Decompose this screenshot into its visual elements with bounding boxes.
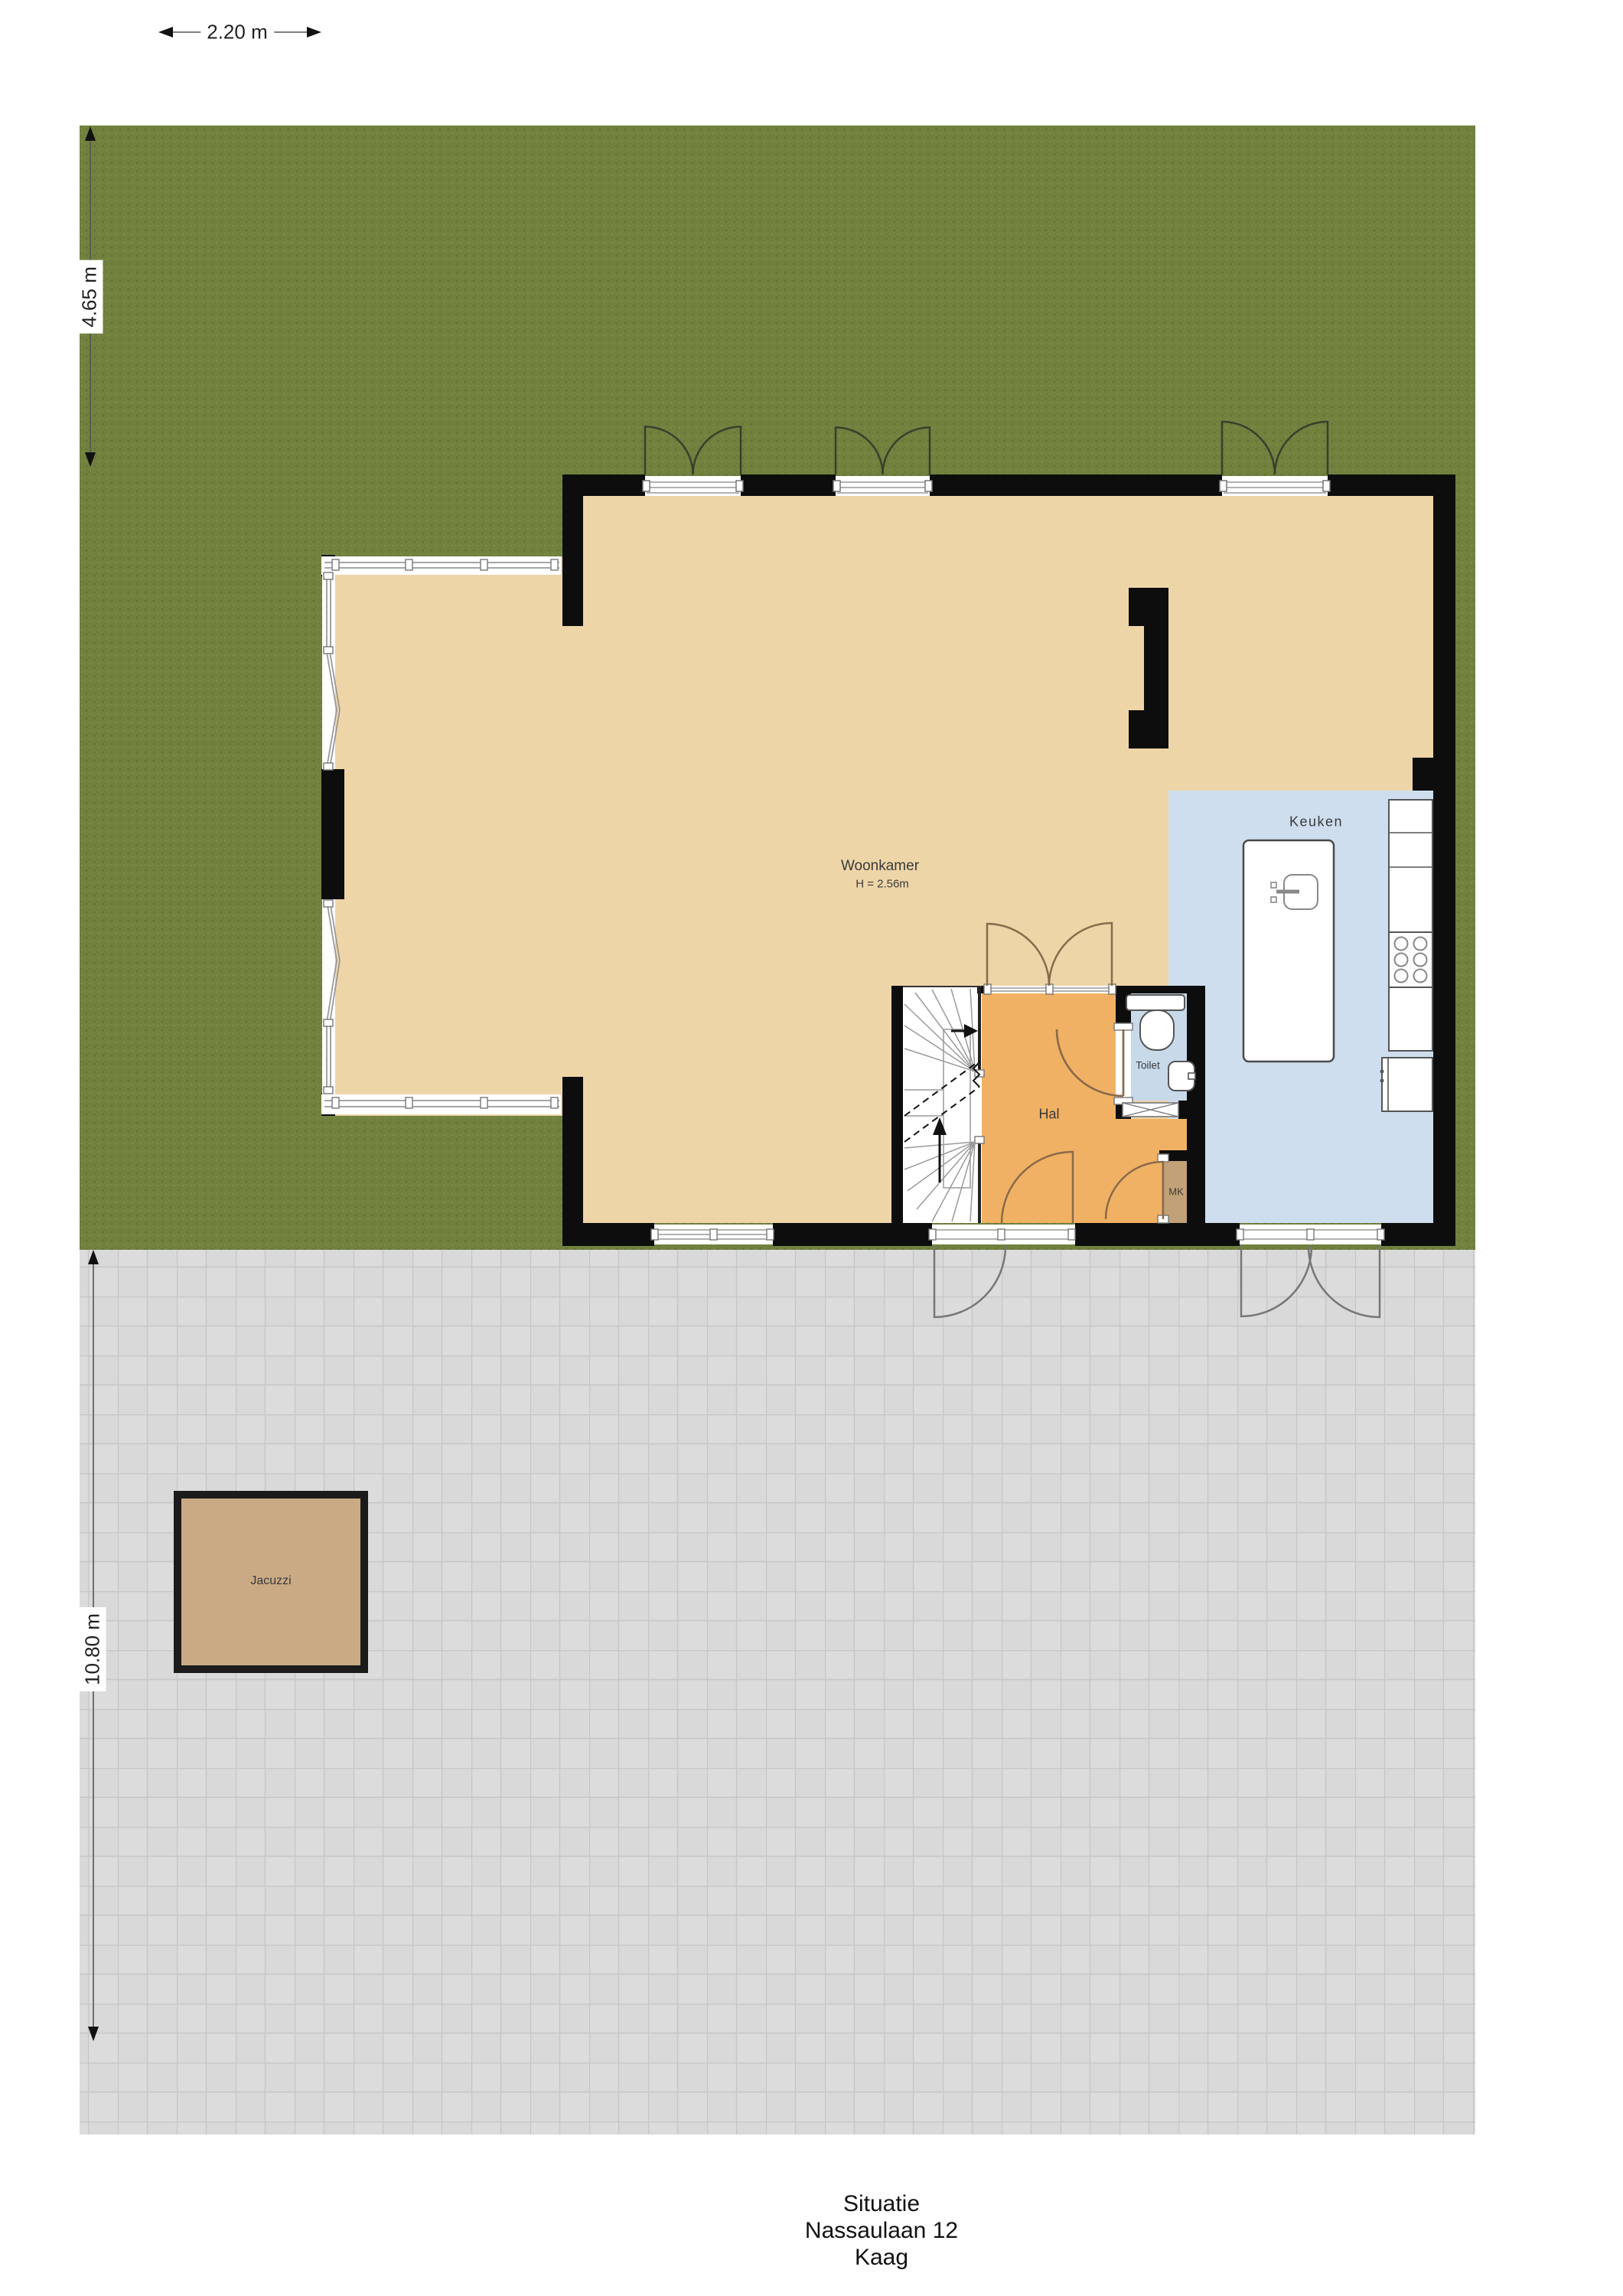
title-address: Nassaulaan 12 (805, 2217, 958, 2244)
dim-garden-depth-label: 4.65 m (77, 260, 103, 334)
fridge-icon (1380, 1058, 1433, 1111)
bottom-window-left (651, 1225, 774, 1244)
basin-icon (1168, 1062, 1195, 1091)
terrace (80, 1250, 1475, 2135)
dim-top-label: 2.20 m (200, 19, 274, 46)
title-plan: Situatie (805, 2190, 958, 2217)
living-room-label: Woonkamer (841, 858, 919, 875)
title-block: Situatie Nassaulaan 12 Kaag (805, 2190, 958, 2271)
floorplan-page: 2.20 m 4.65 m 10.80 m Woonkamer H = 2.56… (0, 0, 1623, 2296)
bay-floor (324, 556, 583, 1116)
kitchen-island (1243, 840, 1334, 1062)
living-room-height-label: H = 2.56m (855, 878, 909, 891)
title-city: Kaag (805, 2244, 958, 2271)
dim-terrace-depth-label: 10.80 m (80, 1607, 106, 1691)
meter-cupboard-label: MK (1168, 1186, 1184, 1198)
stove-icon (1389, 932, 1432, 987)
hall-label: Hal (1038, 1107, 1059, 1123)
kitchen-label: Keuken (1289, 814, 1343, 830)
jacuzzi-label: Jacuzzi (250, 1574, 291, 1588)
toilet-label: Toilet (1136, 1060, 1160, 1071)
kitchen-counter (1389, 800, 1432, 1051)
toilet-vent-window (1123, 1103, 1178, 1117)
floorplan-drawing (0, 0, 1623, 2296)
